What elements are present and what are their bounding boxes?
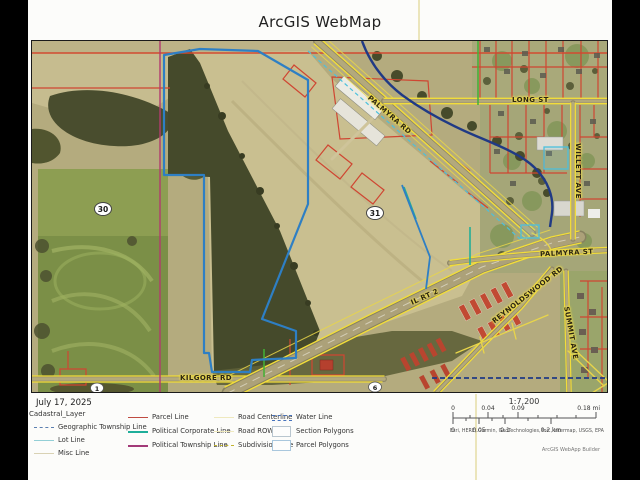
- swatch-subdivision-line: [214, 445, 234, 446]
- swatch-political-township-line: [128, 445, 148, 447]
- house-red-roof: [320, 360, 333, 370]
- app-builder-credit: ArcGIS WebApp Builder: [542, 447, 600, 453]
- road-label-long-st: LONG ST: [512, 96, 549, 104]
- attribution-text: Esri, HERE, Garmin, GeoTechnologies, Inc…: [450, 429, 608, 435]
- legend-item: Misc Line: [58, 449, 89, 457]
- section-30-label: 30: [98, 205, 108, 214]
- map-frame: 30 31 1 6 PALMYRA RD LONG ST WILLETT AVE…: [31, 40, 608, 393]
- scale-mi-3: 0.18 mi: [577, 405, 600, 412]
- legend-item: Parcel Polygons: [296, 441, 349, 449]
- legend-item: Lot Line: [58, 436, 85, 444]
- printed-page: ArcGIS WebMap: [28, 0, 612, 480]
- page-title: ArcGIS WebMap: [28, 13, 612, 31]
- scale-mi-1: 0.04: [481, 405, 495, 412]
- scanned-arcgis-printout: { "title": "ArcGIS WebMap", "map_date": …: [0, 0, 640, 480]
- swatch-misc-line: [34, 453, 54, 454]
- scale-mi-0: 0: [451, 405, 455, 412]
- legend-heading: Cadastral_Layer: [29, 410, 85, 418]
- section-1-label: 1: [95, 385, 100, 392]
- aerial-basemap: 30 31 1 6: [32, 41, 607, 392]
- swatch-road-centerline: [214, 417, 234, 418]
- swatch-parcel-line: [128, 417, 148, 418]
- legend-item: Water Line: [296, 413, 332, 421]
- legend-item: Section Polygons: [296, 427, 354, 435]
- swatch-section-polygons: [272, 426, 291, 437]
- road-label-willett-ave: WILLETT AVE: [574, 143, 582, 199]
- scale-mi-2: 0.09: [511, 405, 525, 412]
- legend-item: Geographic Township Line: [58, 423, 147, 431]
- swatch-lot-line: [34, 440, 54, 441]
- swatch-parcel-polygons: [272, 440, 291, 451]
- swatch-water-line: [272, 415, 292, 421]
- swatch-political-corporate-line: [128, 431, 148, 433]
- road-label-kilgore-rd: KILGORE RD: [180, 374, 232, 382]
- swatch-geographic-township-line: [34, 427, 54, 428]
- section-6-label: 6: [373, 384, 378, 392]
- section-31-label: 31: [370, 209, 380, 218]
- legend-item: Parcel Line: [152, 413, 189, 421]
- legend-item: Road ROW: [238, 427, 274, 435]
- map-date: July 17, 2025: [36, 398, 92, 408]
- swatch-road-row: [214, 431, 234, 432]
